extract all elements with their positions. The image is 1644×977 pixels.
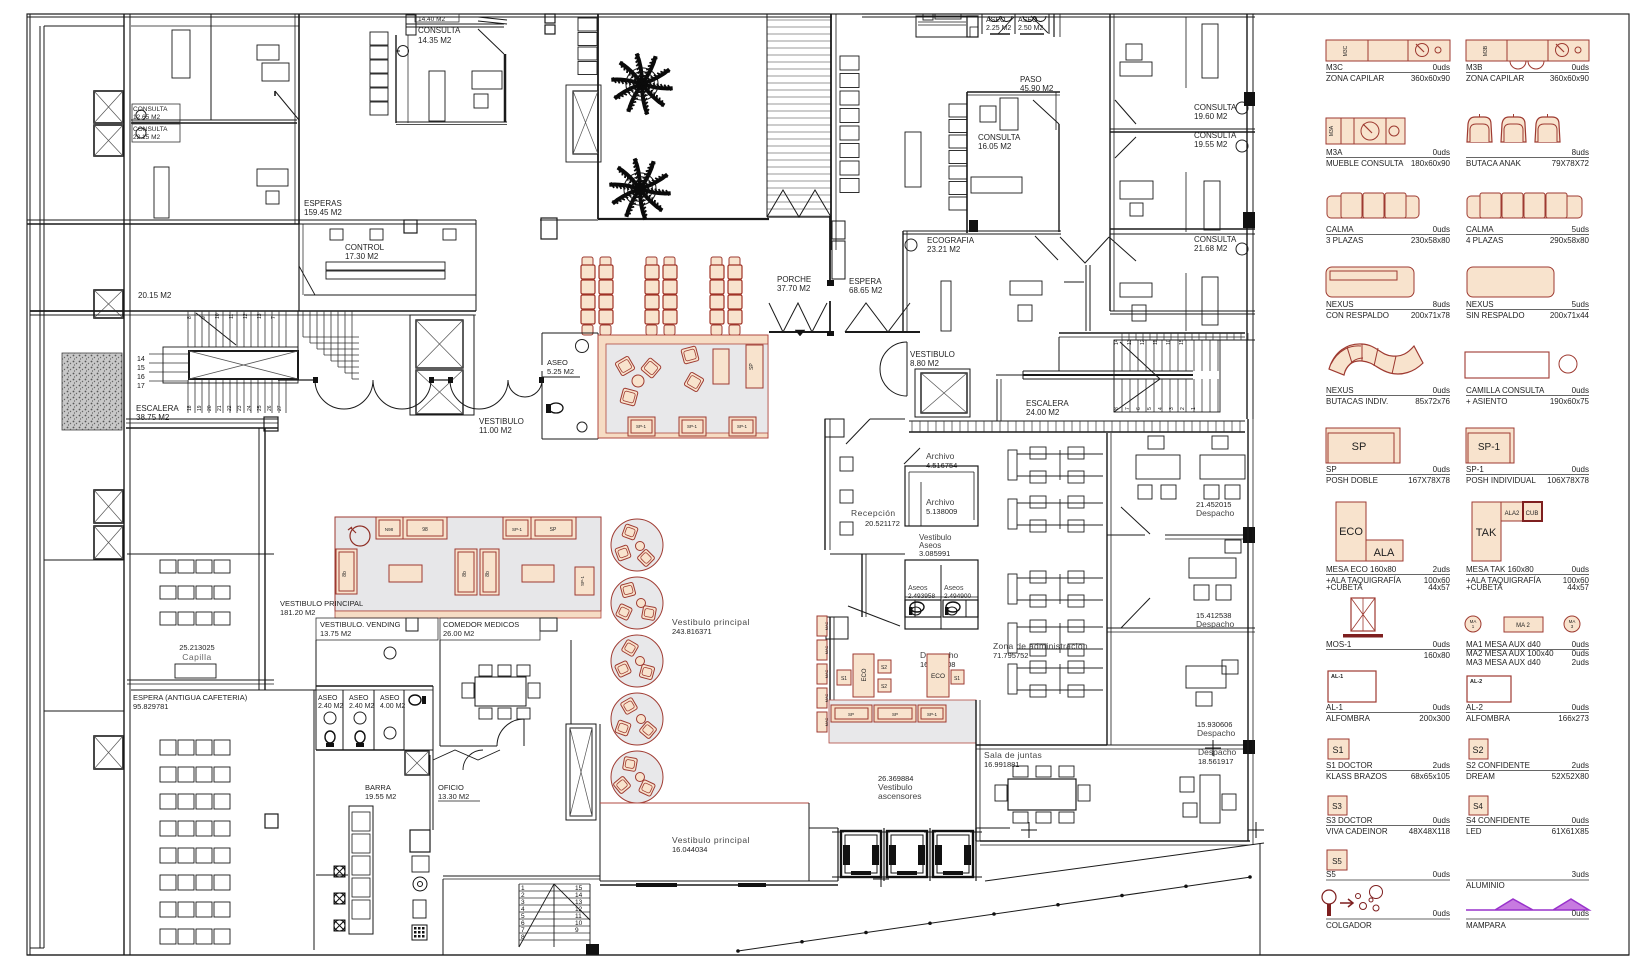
svg-text:CONSULTA: CONSULTA (1194, 235, 1237, 244)
svg-text:POSH INDIVIDUAL: POSH INDIVIDUAL (1466, 476, 1536, 485)
svg-text:68.65 M2: 68.65 M2 (849, 286, 883, 295)
svg-text:1: 1 (521, 885, 525, 892)
svg-text:Sala de juntas: Sala de juntas (984, 750, 1042, 760)
svg-text:Zona de administracion: Zona de administracion (993, 641, 1088, 651)
svg-text:ALA2: ALA2 (1505, 511, 1520, 517)
svg-text:19.60 M2: 19.60 M2 (1194, 112, 1228, 121)
svg-text:M3B: M3B (1483, 45, 1489, 56)
svg-text:ESCALERA: ESCALERA (1026, 399, 1069, 408)
svg-text:+ ASIENTO: + ASIENTO (1466, 397, 1507, 406)
svg-text:9: 9 (575, 927, 579, 934)
svg-text:ALUMINIO: ALUMINIO (1466, 881, 1505, 890)
svg-text:ZONA CAPILAR: ZONA CAPILAR (1466, 74, 1524, 83)
svg-text:17: 17 (137, 383, 145, 390)
svg-text:200x71x78: 200x71x78 (1411, 311, 1451, 320)
svg-text:+CUBETA: +CUBETA (1466, 583, 1503, 592)
svg-text:BARRA: BARRA (365, 783, 391, 792)
svg-text:19: 19 (197, 405, 203, 411)
svg-text:VESTIBULO: VESTIBULO (479, 417, 524, 426)
svg-text:S2 CONFIDENTE: S2 CONFIDENTE (1466, 761, 1530, 770)
svg-text:20.15 M2: 20.15 M2 (138, 291, 172, 300)
svg-text:24: 24 (247, 405, 253, 411)
svg-text:0uds: 0uds (1433, 225, 1450, 234)
svg-text:0uds: 0uds (1572, 386, 1589, 395)
svg-text:Despacho: Despacho (1196, 508, 1235, 518)
svg-text:20: 20 (207, 405, 213, 411)
svg-text:SP-1: SP-1 (737, 424, 748, 429)
svg-text:SP: SP (550, 527, 557, 533)
svg-text:Aseos: Aseos (944, 585, 964, 592)
svg-text:11: 11 (229, 314, 235, 319)
svg-text:71.795752: 71.795752 (993, 651, 1028, 660)
svg-text:MESA ECO 160x80: MESA ECO 160x80 (1326, 565, 1397, 574)
svg-text:2: 2 (1180, 407, 1186, 410)
svg-text:0uds: 0uds (1572, 640, 1589, 649)
svg-text:0uds: 0uds (1572, 649, 1589, 658)
svg-text:2: 2 (521, 892, 525, 899)
svg-text:200x300: 200x300 (1419, 714, 1450, 723)
svg-text:10: 10 (575, 920, 583, 927)
svg-text:BUTACAS INDIV.: BUTACAS INDIV. (1326, 397, 1388, 406)
svg-text:3: 3 (521, 899, 525, 906)
svg-text:S1 DOCTOR: S1 DOCTOR (1326, 761, 1373, 770)
svg-text:0uds: 0uds (1433, 63, 1450, 72)
svg-text:166x273: 166x273 (1558, 714, 1589, 723)
svg-text:243.816371: 243.816371 (672, 627, 712, 636)
svg-text:11: 11 (575, 913, 582, 920)
svg-text:3 PLAZAS: 3 PLAZAS (1326, 236, 1363, 245)
svg-text:190x60x75: 190x60x75 (1550, 397, 1590, 406)
svg-text:8uds: 8uds (1572, 148, 1589, 157)
svg-text:2.40 M2: 2.40 M2 (318, 703, 343, 710)
svg-text:2.40 M2: 2.40 M2 (349, 703, 374, 710)
svg-text:17.30 M2: 17.30 M2 (345, 252, 379, 261)
svg-text:SP: SP (892, 712, 898, 717)
svg-text:7: 7 (521, 927, 525, 934)
svg-text:LED: LED (1466, 827, 1482, 836)
svg-text:2.25 M2: 2.25 M2 (986, 25, 1011, 32)
svg-text:MAC: MAC (825, 670, 829, 679)
svg-text:KLASS BRAZOS: KLASS BRAZOS (1326, 772, 1387, 781)
svg-text:Aseos: Aseos (908, 585, 928, 592)
svg-text:0uds: 0uds (1433, 703, 1450, 712)
svg-text:6: 6 (521, 920, 525, 927)
svg-text:106X78X78: 106X78X78 (1547, 476, 1589, 485)
svg-text:S2: S2 (881, 684, 887, 690)
svg-text:SP-1: SP-1 (512, 527, 523, 532)
svg-text:NEXUS: NEXUS (1326, 300, 1354, 309)
svg-text:2uds: 2uds (1433, 565, 1450, 574)
svg-text:16.044034: 16.044034 (672, 845, 707, 854)
svg-text:S4 CONFIDENTE: S4 CONFIDENTE (1466, 816, 1530, 825)
svg-text:230x58x80: 230x58x80 (1411, 236, 1451, 245)
svg-text:0uds: 0uds (1433, 386, 1450, 395)
svg-text:290x58x80: 290x58x80 (1550, 236, 1590, 245)
svg-text:CONSULTA: CONSULTA (133, 126, 168, 133)
svg-text:5uds: 5uds (1572, 300, 1589, 309)
svg-text:37.70 M2: 37.70 M2 (777, 284, 811, 293)
svg-text:ESCALERA: ESCALERA (136, 404, 179, 413)
svg-text:26.00 M2: 26.00 M2 (443, 629, 474, 638)
svg-text:2.50 M2: 2.50 M2 (1018, 25, 1043, 32)
svg-text:19.55 M2: 19.55 M2 (365, 792, 396, 801)
svg-text:S4: S4 (1473, 802, 1483, 811)
svg-text:VESTIBULO: VESTIBULO (910, 350, 955, 359)
svg-text:VESTIBULO PRINCIPAL: VESTIBULO PRINCIPAL (280, 599, 363, 608)
svg-text:85x72x76: 85x72x76 (1415, 397, 1450, 406)
svg-text:CONSULTA: CONSULTA (1194, 131, 1237, 140)
svg-text:4: 4 (1158, 407, 1164, 410)
svg-text:ZONA CAPILAR: ZONA CAPILAR (1326, 74, 1384, 83)
svg-text:S1: S1 (954, 676, 960, 682)
svg-text:AL-2: AL-2 (1470, 679, 1482, 685)
svg-text:M3C: M3C (1343, 45, 1349, 56)
svg-text:22.15 M2: 22.15 M2 (133, 134, 160, 141)
svg-text:ESPERA (ANTIGUA CAFETERIA): ESPERA (ANTIGUA CAFETERIA) (133, 693, 248, 702)
svg-text:13: 13 (575, 899, 583, 906)
svg-text:ASEO: ASEO (318, 695, 338, 702)
svg-text:ASEO: ASEO (380, 695, 400, 702)
svg-text:8b: 8b (342, 571, 348, 577)
svg-text:CONSULTA: CONSULTA (978, 133, 1021, 142)
svg-text:Vestibulo principal: Vestibulo principal (672, 835, 750, 845)
svg-text:MAC: MAC (825, 622, 829, 631)
svg-text:POSH DOBLE: POSH DOBLE (1326, 476, 1378, 485)
svg-text:48X48X118: 48X48X118 (1409, 827, 1451, 836)
svg-text:14.35 M2: 14.35 M2 (418, 36, 452, 45)
svg-text:SP-1: SP-1 (687, 424, 698, 429)
svg-text:3uds: 3uds (1572, 870, 1589, 879)
svg-text:S2: S2 (1472, 745, 1483, 755)
svg-text:Archivo: Archivo (926, 451, 955, 461)
svg-text:16.991881: 16.991881 (984, 760, 1019, 769)
svg-text:MA 2: MA 2 (1516, 623, 1530, 629)
svg-text:22: 22 (227, 405, 233, 411)
svg-text:Archivo: Archivo (926, 497, 955, 507)
svg-text:14.40 M2: 14.40 M2 (418, 16, 445, 23)
svg-text:ASEO: ASEO (349, 695, 369, 702)
svg-text:61X61X85: 61X61X85 (1552, 827, 1590, 836)
svg-text:ALFOMBRA: ALFOMBRA (1466, 714, 1511, 723)
svg-text:SP: SP (749, 363, 755, 370)
svg-text:SIN RESPALDO: SIN RESPALDO (1466, 311, 1525, 320)
svg-text:21: 21 (217, 405, 223, 411)
svg-text:2.494900: 2.494900 (944, 593, 971, 600)
svg-text:23: 23 (237, 405, 243, 411)
svg-text:SP-1: SP-1 (1478, 442, 1501, 453)
svg-text:5uds: 5uds (1572, 225, 1589, 234)
svg-text:MAC: MAC (825, 694, 829, 703)
svg-text:MA2 MESA AUX 100x40: MA2 MESA AUX 100x40 (1466, 649, 1554, 658)
svg-text:8uds: 8uds (1433, 300, 1450, 309)
svg-text:181.20 M2: 181.20 M2 (280, 608, 315, 617)
svg-text:S1: S1 (841, 676, 847, 682)
svg-text:18.561917: 18.561917 (1198, 757, 1233, 766)
svg-text:6: 6 (1136, 407, 1142, 410)
svg-text:2uds: 2uds (1572, 761, 1589, 770)
svg-text:0uds: 0uds (1572, 703, 1589, 712)
svg-text:0uds: 0uds (1433, 816, 1450, 825)
svg-text:+CUBETA: +CUBETA (1326, 583, 1363, 592)
svg-text:95.829781: 95.829781 (133, 702, 168, 711)
svg-text:SP: SP (1352, 441, 1367, 453)
svg-text:M3A: M3A (1326, 148, 1343, 157)
svg-text:160x80: 160x80 (1424, 651, 1451, 660)
svg-text:0uds: 0uds (1433, 640, 1450, 649)
svg-text:ECO: ECO (1339, 526, 1363, 538)
svg-text:CONTROL: CONTROL (345, 243, 385, 252)
svg-text:CONSULTA: CONSULTA (1194, 103, 1237, 112)
svg-text:14: 14 (137, 356, 145, 363)
svg-text:MOS-1: MOS-1 (1326, 640, 1352, 649)
svg-text:8b: 8b (485, 571, 491, 577)
svg-text:14: 14 (575, 892, 583, 899)
svg-text:18: 18 (187, 405, 193, 411)
svg-text:ALFOMBRA: ALFOMBRA (1326, 714, 1371, 723)
svg-text:Despacho: Despacho (1197, 728, 1236, 738)
svg-text:24.00 M2: 24.00 M2 (1026, 408, 1060, 417)
svg-text:14: 14 (1114, 339, 1120, 345)
svg-text:CONSULTA: CONSULTA (418, 26, 461, 35)
svg-text:VESTIBULO. VENDING: VESTIBULO. VENDING (320, 620, 401, 629)
svg-text:ASEO: ASEO (547, 358, 568, 367)
svg-text:23.21 M2: 23.21 M2 (927, 245, 961, 254)
svg-text:0uds: 0uds (1572, 816, 1589, 825)
svg-text:98: 98 (422, 527, 428, 533)
svg-text:26: 26 (267, 405, 273, 411)
svg-text:4 PLAZAS: 4 PLAZAS (1466, 236, 1503, 245)
svg-text:5: 5 (1147, 407, 1153, 410)
svg-text:S1: S1 (1332, 745, 1343, 755)
svg-text:S5: S5 (1326, 870, 1336, 879)
svg-text:79X78X72: 79X78X72 (1552, 159, 1590, 168)
svg-text:21.68 M2: 21.68 M2 (1194, 244, 1228, 253)
svg-text:N98: N98 (385, 527, 394, 532)
svg-text:ALA: ALA (1374, 547, 1395, 559)
svg-text:SP-1: SP-1 (636, 424, 647, 429)
svg-text:44x57: 44x57 (1428, 583, 1450, 592)
svg-text:SP-1: SP-1 (580, 576, 585, 587)
svg-text:SP: SP (848, 712, 854, 717)
svg-text:CALMA: CALMA (1326, 225, 1354, 234)
svg-text:0uds: 0uds (1572, 63, 1589, 72)
svg-text:MA1 MESA AUX d40: MA1 MESA AUX d40 (1466, 640, 1541, 649)
svg-text:12: 12 (243, 313, 249, 319)
svg-text:27: 27 (277, 405, 283, 411)
svg-text:0uds: 0uds (1572, 565, 1589, 574)
svg-text:S2: S2 (881, 665, 887, 671)
svg-text:NEXUS: NEXUS (1466, 300, 1494, 309)
svg-text:MAMPARA: MAMPARA (1466, 921, 1507, 930)
svg-text:0uds: 0uds (1433, 909, 1450, 918)
svg-text:OFICIO: OFICIO (438, 783, 464, 792)
svg-text:PORCHE: PORCHE (777, 275, 811, 284)
svg-text:0uds: 0uds (1572, 465, 1589, 474)
svg-text:11.00 M2: 11.00 M2 (479, 426, 512, 435)
svg-text:SP: SP (1326, 465, 1337, 474)
svg-text:SP-1: SP-1 (927, 712, 938, 717)
svg-text:VIVA CADEINOR: VIVA CADEINOR (1326, 827, 1388, 836)
svg-text:2.493958: 2.493958 (908, 593, 935, 600)
svg-text:19.55 M2: 19.55 M2 (1194, 140, 1228, 149)
svg-text:0uds: 0uds (1572, 909, 1589, 918)
svg-text:8: 8 (1114, 407, 1120, 410)
svg-text:ESPERA: ESPERA (849, 277, 882, 286)
svg-text:25.213025: 25.213025 (179, 643, 214, 652)
svg-text:5: 5 (521, 913, 525, 920)
svg-text:16: 16 (137, 374, 145, 381)
svg-text:3.085991: 3.085991 (919, 549, 950, 558)
svg-text:180x60x90: 180x60x90 (1411, 159, 1451, 168)
svg-text:8.80 M2: 8.80 M2 (910, 359, 939, 368)
svg-text:MUEBLE CONSULTA: MUEBLE CONSULTA (1326, 159, 1404, 168)
svg-text:MESA TAK 160x80: MESA TAK 160x80 (1466, 565, 1534, 574)
svg-text:13.30 M2: 13.30 M2 (438, 792, 469, 801)
svg-text:PASO: PASO (1020, 75, 1042, 84)
svg-text:AL-1: AL-1 (1326, 703, 1343, 712)
svg-text:AL-2: AL-2 (1466, 703, 1483, 712)
svg-text:CONSULTA: CONSULTA (133, 106, 168, 113)
svg-text:8: 8 (187, 316, 193, 319)
svg-text:NEXUS: NEXUS (1326, 386, 1354, 395)
svg-text:159.45 M2: 159.45 M2 (304, 208, 342, 217)
svg-text:2uds: 2uds (1572, 658, 1589, 667)
svg-text:5.25 M2: 5.25 M2 (547, 367, 574, 376)
svg-text:0uds: 0uds (1433, 148, 1450, 157)
svg-text:7: 7 (1125, 407, 1131, 410)
svg-text:38.75 M2: 38.75 M2 (136, 413, 170, 422)
svg-text:10: 10 (215, 313, 221, 319)
svg-text:CON RESPALDO: CON RESPALDO (1326, 311, 1389, 320)
svg-text:13: 13 (257, 313, 263, 319)
svg-text:SP-1: SP-1 (1466, 465, 1484, 474)
svg-text:MAC: MAC (825, 718, 829, 727)
svg-text:8b: 8b (462, 571, 468, 577)
svg-text:ESPERAS: ESPERAS (304, 199, 342, 208)
svg-text:Recepción: Recepción (851, 508, 896, 518)
svg-text:CALMA: CALMA (1466, 225, 1494, 234)
svg-text:1: 1 (1191, 407, 1197, 410)
svg-text:M3B: M3B (1466, 63, 1482, 72)
svg-text:68x65x105: 68x65x105 (1411, 772, 1451, 781)
svg-text:TAK: TAK (1476, 527, 1497, 539)
svg-text:COLGADOR: COLGADOR (1326, 921, 1372, 930)
svg-text:ascensores: ascensores (878, 791, 921, 801)
svg-text:7: 7 (271, 316, 277, 319)
svg-text:S3: S3 (1332, 802, 1342, 811)
svg-text:4.00 M2: 4.00 M2 (380, 703, 405, 710)
svg-text:15: 15 (575, 885, 583, 892)
svg-text:167X78X78: 167X78X78 (1408, 476, 1450, 485)
svg-text:2uds: 2uds (1433, 761, 1450, 770)
svg-text:ECOGRAFIA: ECOGRAFIA (927, 236, 975, 245)
svg-text:Capilla: Capilla (182, 652, 212, 662)
svg-text:13.75 M2: 13.75 M2 (320, 629, 351, 638)
svg-text:360x60x90: 360x60x90 (1411, 74, 1451, 83)
svg-text:COMEDOR MEDICOS: COMEDOR MEDICOS (443, 620, 519, 629)
svg-text:CUB: CUB (1526, 511, 1539, 517)
svg-text:BUTACA ANAK: BUTACA ANAK (1466, 159, 1522, 168)
svg-text:44x57: 44x57 (1567, 583, 1589, 592)
svg-text:4: 4 (521, 906, 525, 913)
svg-text:0uds: 0uds (1433, 870, 1450, 879)
svg-text:S5: S5 (1332, 857, 1342, 866)
svg-text:MAC: MAC (825, 646, 829, 655)
svg-text:ECO: ECO (931, 673, 945, 680)
svg-text:0uds: 0uds (1433, 465, 1450, 474)
svg-text:16.05 M2: 16.05 M2 (978, 142, 1012, 151)
svg-text:M3A: M3A (1329, 125, 1335, 136)
svg-text:20.521172: 20.521172 (865, 519, 900, 528)
svg-text:ECO: ECO (862, 668, 868, 681)
svg-text:3: 3 (1169, 407, 1175, 410)
svg-text:25: 25 (257, 405, 263, 411)
svg-text:200x71x44: 200x71x44 (1550, 311, 1590, 320)
svg-text:S3 DOCTOR: S3 DOCTOR (1326, 816, 1373, 825)
svg-text:DREAM: DREAM (1466, 772, 1495, 781)
svg-text:AL-1: AL-1 (1331, 674, 1343, 680)
svg-text:52X52X80: 52X52X80 (1552, 772, 1590, 781)
svg-text:M3C: M3C (1326, 63, 1343, 72)
svg-text:5.138009: 5.138009 (926, 507, 957, 516)
svg-text:15: 15 (137, 365, 145, 372)
svg-text:360x60x90: 360x60x90 (1550, 74, 1590, 83)
svg-text:Vestibulo principal: Vestibulo principal (672, 617, 750, 627)
svg-text:CAMILLA CONSULTA: CAMILLA CONSULTA (1466, 386, 1545, 395)
svg-text:MA3 MESA AUX d40: MA3 MESA AUX d40 (1466, 658, 1541, 667)
